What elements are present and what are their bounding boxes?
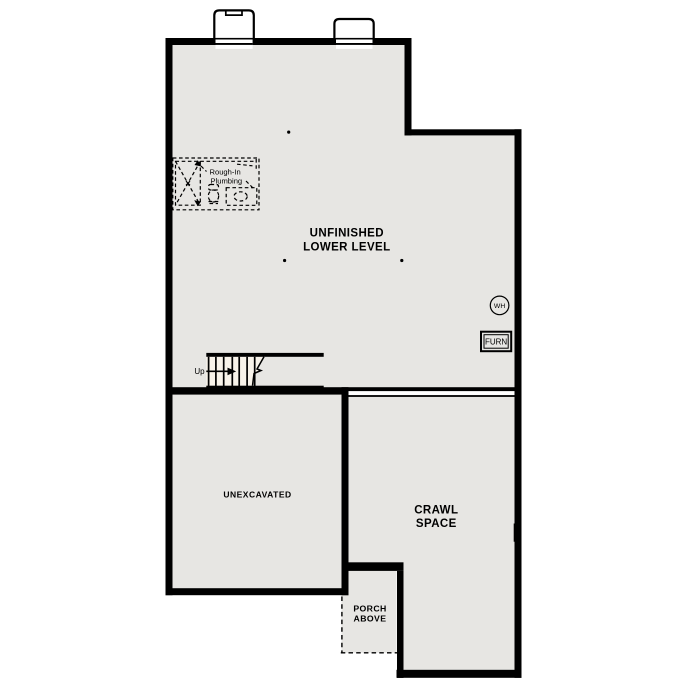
svg-text:Up: Up [194, 367, 205, 376]
svg-text:FURN: FURN [485, 338, 507, 347]
svg-text:Plumbing: Plumbing [211, 176, 243, 185]
svg-text:CRAWL: CRAWL [414, 505, 458, 517]
svg-text:SPACE: SPACE [416, 518, 457, 530]
svg-text:UNEXCAVATED: UNEXCAVATED [223, 490, 291, 500]
svg-text:Rough-In: Rough-In [210, 168, 241, 177]
svg-text:ABOVE: ABOVE [354, 613, 387, 623]
svg-text:UNFINISHED: UNFINISHED [310, 228, 384, 240]
svg-text:LOWER LEVEL: LOWER LEVEL [303, 242, 390, 254]
svg-text:PORCH: PORCH [353, 603, 386, 613]
svg-text:WH: WH [494, 303, 505, 310]
